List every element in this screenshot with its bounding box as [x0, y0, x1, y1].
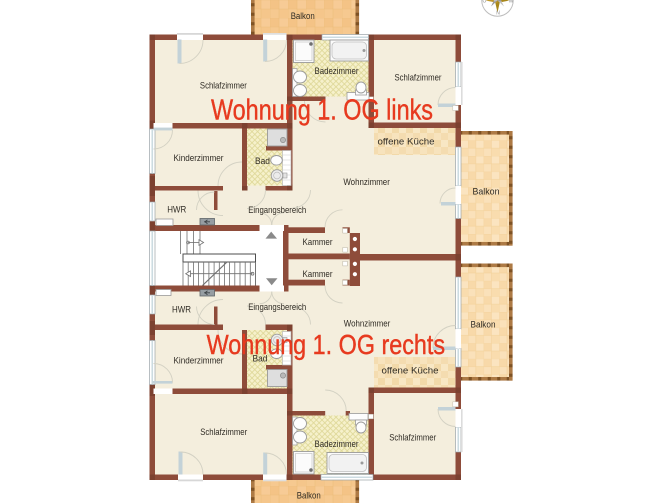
svg-text:Eingangsbereich: Eingangsbereich	[248, 302, 306, 313]
svg-text:Schlafzimmer: Schlafzimmer	[389, 432, 436, 443]
svg-text:Schlafzimmer: Schlafzimmer	[200, 427, 247, 438]
svg-text:Kammer: Kammer	[303, 269, 333, 280]
svg-text:W: W	[509, 0, 514, 5]
svg-text:Eingangsbereich: Eingangsbereich	[248, 205, 306, 216]
svg-text:Balkon: Balkon	[297, 491, 321, 501]
svg-text:Kammer: Kammer	[303, 237, 333, 248]
svg-text:offene Küche: offene Küche	[378, 136, 435, 147]
svg-text:HWR: HWR	[167, 204, 186, 215]
svg-text:N: N	[496, 10, 500, 16]
svg-text:Schlafzimmer: Schlafzimmer	[200, 80, 247, 91]
svg-text:Balkon: Balkon	[473, 187, 500, 197]
svg-text:Wohnzimmer: Wohnzimmer	[343, 177, 390, 188]
svg-text:Kinderzimmer: Kinderzimmer	[174, 153, 224, 164]
svg-text:Balkon: Balkon	[471, 320, 496, 330]
svg-text:offene Küche: offene Küche	[382, 365, 439, 376]
svg-text:Badezimmer: Badezimmer	[315, 66, 359, 77]
svg-text:O: O	[483, 0, 487, 5]
svg-text:Balkon: Balkon	[291, 11, 315, 21]
svg-text:Badezimmer: Badezimmer	[315, 439, 359, 450]
svg-text:Bad: Bad	[255, 156, 270, 167]
svg-text:Wohnung 1. OG rechts: Wohnung 1. OG rechts	[207, 329, 446, 360]
svg-text:Wohnzimmer: Wohnzimmer	[344, 318, 391, 329]
svg-text:HWR: HWR	[172, 304, 191, 315]
svg-text:Schlafzimmer: Schlafzimmer	[395, 72, 442, 83]
svg-text:Wohnung 1. OG links: Wohnung 1. OG links	[211, 94, 433, 126]
